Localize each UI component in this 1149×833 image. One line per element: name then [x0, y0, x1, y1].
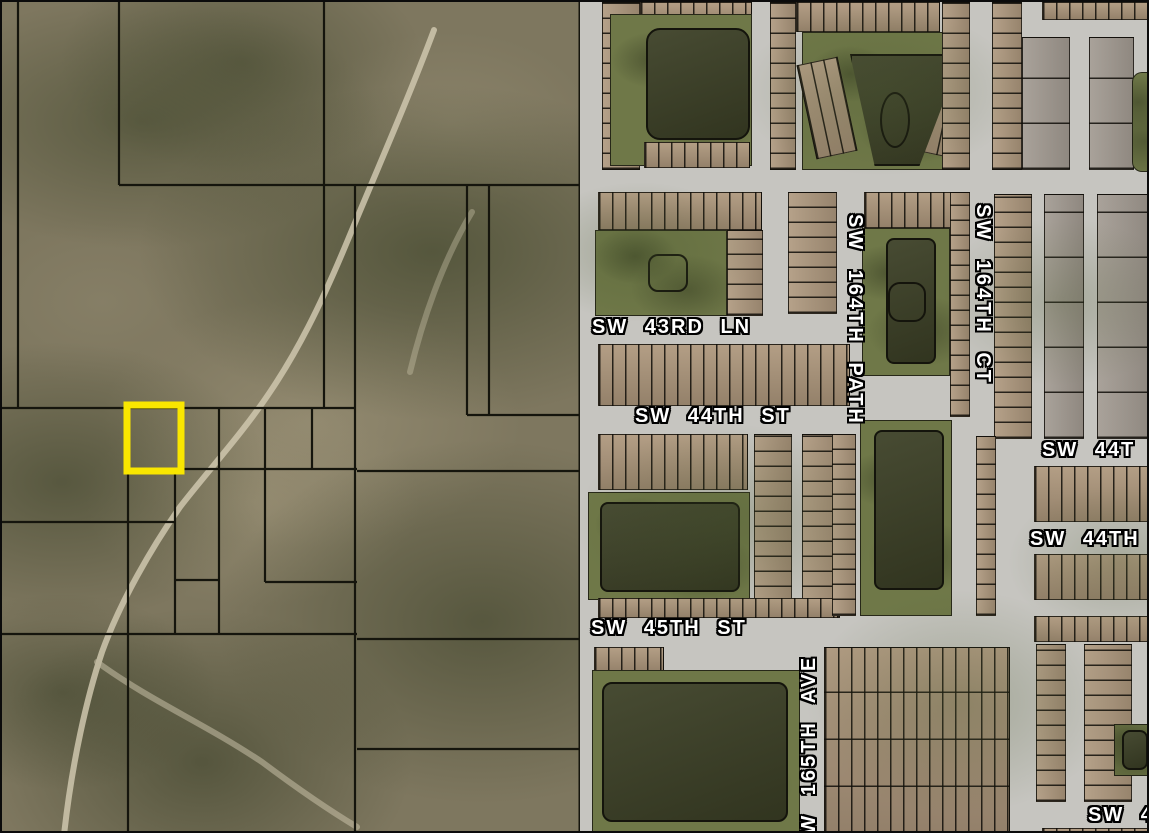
housing-block: [796, 2, 940, 32]
parcel-lines-svg: [2, 2, 582, 833]
housing-block: [1084, 644, 1132, 802]
housing-block: [788, 192, 837, 314]
housing-block: [598, 192, 762, 230]
housing-block: [1022, 37, 1070, 170]
housing-block: [598, 344, 850, 406]
parcel-boundary-lines: [2, 2, 582, 833]
housing-block: [1097, 194, 1149, 439]
pond: [602, 682, 788, 822]
street-label-sw-45th-st: SW 45TH ST: [591, 618, 747, 638]
street-label-sw-165th-ave: SW 165TH AVE: [799, 655, 819, 833]
pond-buffer: [1132, 72, 1149, 172]
housing-block: [1042, 828, 1149, 833]
housing-block: [1034, 554, 1149, 600]
street-label-sw-164th-ct: SW 164TH CT: [973, 204, 993, 385]
pond: [646, 28, 750, 140]
highlighted-parcel[interactable]: [127, 405, 181, 471]
pond-island-outline: [880, 92, 910, 148]
housing-block: [1042, 2, 1149, 20]
street-label-sw-44t-right: SW 44T: [1042, 440, 1135, 460]
aerial-map-canvas[interactable]: SW 43RD LN SW 44TH ST SW 164TH PATH SW 1…: [0, 0, 1149, 833]
housing-block: [1044, 194, 1084, 439]
housing-block: [992, 2, 1022, 170]
pond-parcel-outline: [888, 282, 926, 322]
housing-block: [950, 192, 970, 417]
street-label-sw-44th-st: SW 44TH ST: [635, 406, 791, 426]
housing-block: [1034, 616, 1149, 642]
housing-block: [824, 647, 1010, 833]
housing-block: [754, 434, 792, 618]
housing-block: [598, 434, 748, 490]
housing-block: [942, 2, 970, 170]
housing-block: [727, 230, 763, 316]
undeveloped-land-area: [2, 2, 582, 833]
housing-block: [1089, 37, 1134, 170]
housing-block: [644, 142, 750, 168]
street-label-sw-44th-right: SW 44TH: [1030, 529, 1140, 549]
street-label-sw-164th-path: SW 164TH PATH: [845, 214, 865, 426]
housing-block: [598, 598, 838, 618]
housing-block: [770, 2, 796, 170]
parcel-outline: [648, 254, 688, 292]
housing-block: [994, 194, 1032, 439]
pond: [600, 502, 740, 592]
pond: [874, 430, 944, 590]
housing-block: [832, 434, 856, 616]
pond: [1122, 730, 1148, 770]
housing-block: [1034, 466, 1149, 522]
housing-block: [1036, 644, 1066, 802]
street-label-sw-4-bottom: SW 4: [1088, 805, 1149, 825]
housing-block: [976, 436, 996, 616]
street-label-sw-43rd-ln: SW 43RD LN: [592, 317, 751, 337]
